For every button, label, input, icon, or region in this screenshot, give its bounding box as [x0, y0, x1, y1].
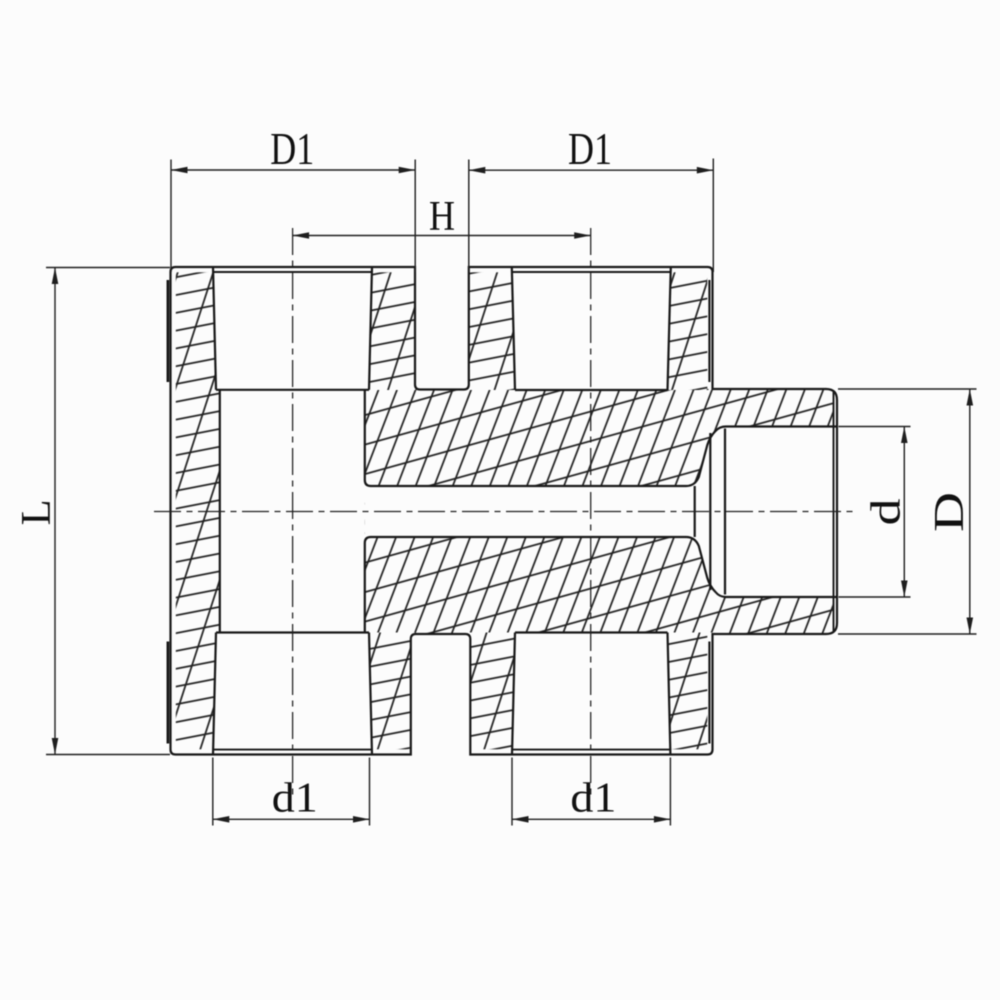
- svg-text:d1: d1: [272, 776, 318, 822]
- svg-text:D1: D1: [568, 124, 612, 174]
- svg-text:L: L: [14, 499, 60, 525]
- svg-text:H: H: [429, 194, 455, 240]
- svg-text:d1: d1: [570, 776, 616, 822]
- svg-text:D1: D1: [270, 124, 314, 174]
- svg-text:d: d: [863, 499, 909, 526]
- svg-text:D: D: [927, 492, 973, 532]
